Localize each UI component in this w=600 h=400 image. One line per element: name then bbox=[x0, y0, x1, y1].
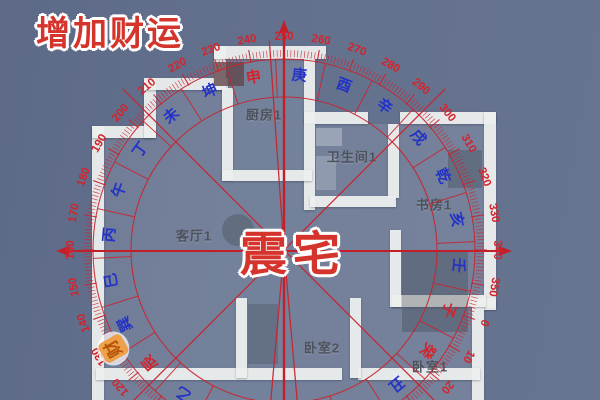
svg-text:癸: 癸 bbox=[416, 339, 440, 363]
svg-text:120: 120 bbox=[110, 376, 132, 398]
svg-text:230: 230 bbox=[200, 41, 222, 59]
svg-text:280: 280 bbox=[379, 56, 402, 76]
svg-text:250: 250 bbox=[274, 31, 293, 43]
svg-text:210: 210 bbox=[136, 76, 158, 98]
svg-text:310: 310 bbox=[458, 132, 478, 155]
svg-text:220: 220 bbox=[166, 56, 189, 76]
svg-text:丁: 丁 bbox=[129, 139, 152, 161]
svg-text:戌: 戌 bbox=[407, 126, 430, 149]
svg-text:乙: 乙 bbox=[173, 382, 195, 400]
house-type-label: 震宅 bbox=[240, 216, 346, 285]
svg-text:270: 270 bbox=[346, 41, 368, 59]
svg-text:140: 140 bbox=[75, 312, 93, 334]
svg-text:190: 190 bbox=[90, 132, 110, 155]
svg-text:未: 未 bbox=[159, 103, 184, 128]
svg-text:300: 300 bbox=[436, 102, 458, 124]
svg-text:330: 330 bbox=[486, 203, 501, 224]
svg-text:亥: 亥 bbox=[447, 211, 467, 229]
luopan-compass-overlay: 0102030405060708090100110120130140150160… bbox=[0, 0, 600, 400]
svg-text:160: 160 bbox=[65, 240, 77, 259]
svg-text:坤: 坤 bbox=[199, 80, 220, 103]
svg-text:200: 200 bbox=[110, 102, 132, 124]
svg-text:丙: 丙 bbox=[101, 227, 119, 243]
svg-text:乾: 乾 bbox=[432, 165, 455, 186]
page-title: 增加财运 bbox=[36, 6, 184, 55]
svg-text:申: 申 bbox=[245, 67, 263, 87]
svg-text:午: 午 bbox=[108, 180, 130, 200]
svg-text:庚: 庚 bbox=[291, 66, 308, 85]
svg-text:巳: 巳 bbox=[102, 272, 121, 290]
svg-text:丑: 丑 bbox=[385, 373, 407, 396]
svg-text:170: 170 bbox=[67, 203, 82, 224]
svg-text:辛: 辛 bbox=[373, 95, 396, 118]
svg-text:壬: 壬 bbox=[449, 257, 467, 273]
svg-text:子: 子 bbox=[438, 300, 459, 320]
svg-text:320: 320 bbox=[475, 166, 493, 188]
svg-text:辰: 辰 bbox=[138, 351, 161, 374]
svg-text:340: 340 bbox=[491, 240, 503, 259]
svg-text:180: 180 bbox=[75, 166, 93, 188]
svg-text:350: 350 bbox=[486, 276, 501, 297]
video-frame: 厨房1 卫生间1 书房1 客厅1 卧室2 卧室1 010203040506070… bbox=[0, 0, 600, 400]
svg-text:酉: 酉 bbox=[334, 75, 354, 96]
svg-text:240: 240 bbox=[237, 33, 258, 48]
svg-text:20: 20 bbox=[438, 378, 455, 396]
svg-text:巽: 巽 bbox=[115, 314, 137, 335]
svg-text:10: 10 bbox=[460, 348, 477, 365]
svg-text:0: 0 bbox=[477, 318, 490, 328]
svg-text:290: 290 bbox=[410, 76, 432, 98]
svg-text:150: 150 bbox=[67, 276, 82, 297]
svg-text:260: 260 bbox=[310, 33, 331, 48]
